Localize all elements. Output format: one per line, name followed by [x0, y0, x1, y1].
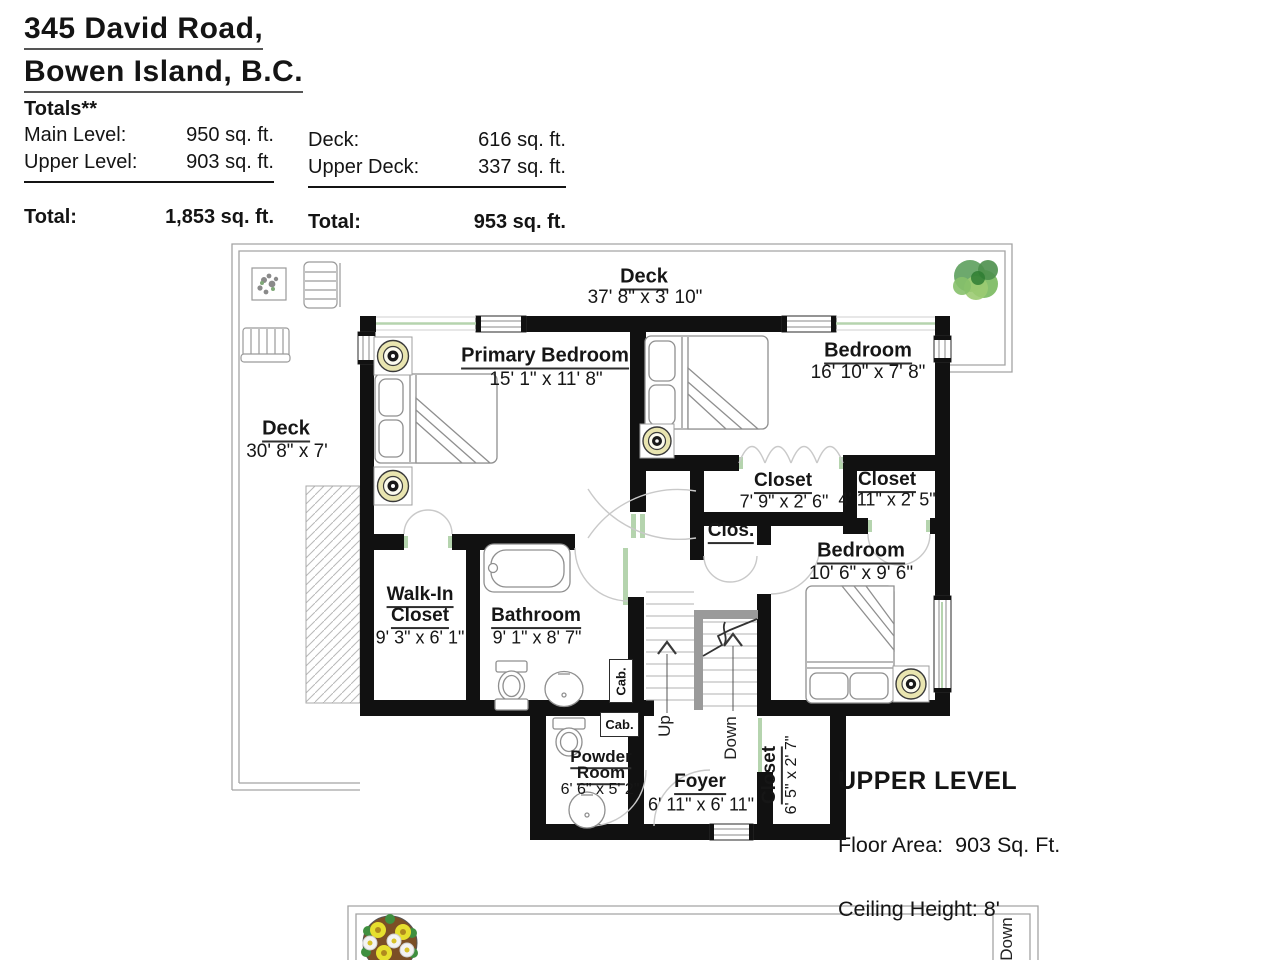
foyer-label: Foyer [674, 771, 726, 795]
deck-top-dims: 37' 8" x 3' 10" [588, 287, 703, 309]
flower-pot-icon [361, 914, 418, 960]
toilet-icon [495, 661, 528, 710]
upper-deck-label: Upper Deck: [308, 154, 419, 181]
ceiling-height-line: Ceiling Height: 8' [838, 896, 1060, 924]
level-info: UPPER LEVEL Floor Area: 903 Sq. Ft. Ceil… [838, 731, 1060, 959]
left-totals-rule [24, 181, 274, 183]
right-total-row: Total: 953 sq. ft. [308, 209, 566, 236]
cabinet-label: Cab. [605, 717, 633, 732]
foyer-dims: 6' 11" x 6' 11" [648, 795, 754, 816]
deck-label: Deck: [308, 127, 359, 154]
bedroom-right-dims: 10' 6" x 9' 6" [809, 563, 913, 585]
floorplan-page: 345 David Road, Bowen Island, B.C. Total… [0, 0, 1280, 960]
powder-room-dims: 6' 6" x 5' 2" [561, 781, 640, 799]
upper-deck-row: Upper Deck: 337 sq. ft. [308, 154, 566, 181]
main-level-value: 950 sq. ft. [186, 122, 274, 149]
cabinet-box: Cab. [600, 712, 639, 737]
address-line-2: Bowen Island, B.C. [24, 55, 303, 93]
clos-small-label: Clos. [708, 520, 754, 544]
bedroom-top-dims: 16' 10" x 7' 8" [811, 362, 926, 384]
deck-row: Deck: 616 sq. ft. [308, 127, 566, 154]
upper-level-row: Upper Level: 903 sq. ft. [24, 149, 274, 176]
deck-left-dims: 30' 8" x 7' [246, 441, 328, 463]
totals-right-column: Deck: 616 sq. ft. Upper Deck: 337 sq. ft… [308, 127, 566, 236]
right-totals-rule [308, 186, 566, 188]
bathtub-icon [484, 544, 570, 592]
cabinet-label: Cab. [614, 667, 629, 695]
left-total-value: 1,853 sq. ft. [165, 204, 274, 231]
totals-left-column: Main Level: 950 sq. ft. Upper Level: 903… [24, 122, 274, 231]
left-total-row: Total: 1,853 sq. ft. [24, 204, 274, 231]
primary-bedroom-label: Primary Bedroom [461, 345, 629, 370]
planter-box-icon [252, 268, 286, 300]
walk-in-closet-dims: 9' 3" x 6' 1" [376, 628, 465, 649]
plant-icon [953, 260, 998, 300]
left-total-label: Total: [24, 204, 77, 231]
bedroom-right-label: Bedroom [817, 540, 905, 565]
upper-level-value: 903 sq. ft. [186, 149, 274, 176]
bed-icon [645, 336, 768, 429]
hatch-area [306, 486, 360, 703]
bench-icon [241, 328, 290, 362]
main-level-label: Main Level: [24, 122, 126, 149]
walk-in-closet-label2: Closet [391, 605, 449, 629]
closet-2-dims: 4' 11" x 2' 5" [838, 490, 935, 511]
bathroom-label: Bathroom [491, 605, 581, 629]
totals-heading: Totals** [24, 98, 97, 121]
level-title: UPPER LEVEL [838, 767, 1060, 796]
closet-foyer-label: Closet 6' 5" x 2' 7" [759, 736, 801, 815]
right-total-value: 953 sq. ft. [474, 209, 566, 236]
cabinet-box: Cab. [609, 659, 633, 703]
stairs-down-label: Down [721, 716, 741, 759]
sink-icon [545, 672, 583, 707]
upper-deck-value: 337 sq. ft. [478, 154, 566, 181]
closet-1-dims: 7' 9" x 2' 6" [740, 492, 829, 513]
bedroom-top-label: Bedroom [824, 340, 912, 365]
bed-icon [375, 374, 497, 463]
deck-left-label: Deck [262, 418, 310, 443]
bed-icon [806, 586, 894, 703]
deck-value: 616 sq. ft. [478, 127, 566, 154]
bathroom-dims: 9' 1" x 8' 7" [493, 628, 582, 649]
closet-1-label: Closet [754, 470, 812, 494]
lounge-chair-icon [304, 262, 340, 308]
stairs-icon [646, 592, 758, 713]
stairs-up-label: Up [655, 715, 675, 737]
primary-bedroom-dims: 15' 1" x 11' 8" [489, 369, 602, 391]
right-total-label: Total: [308, 209, 361, 236]
upper-level-label: Upper Level: [24, 149, 137, 176]
address-line-1: 345 David Road, [24, 12, 263, 50]
floor-area-line: Floor Area: 903 Sq. Ft. [838, 832, 1060, 860]
main-level-row: Main Level: 950 sq. ft. [24, 122, 274, 149]
